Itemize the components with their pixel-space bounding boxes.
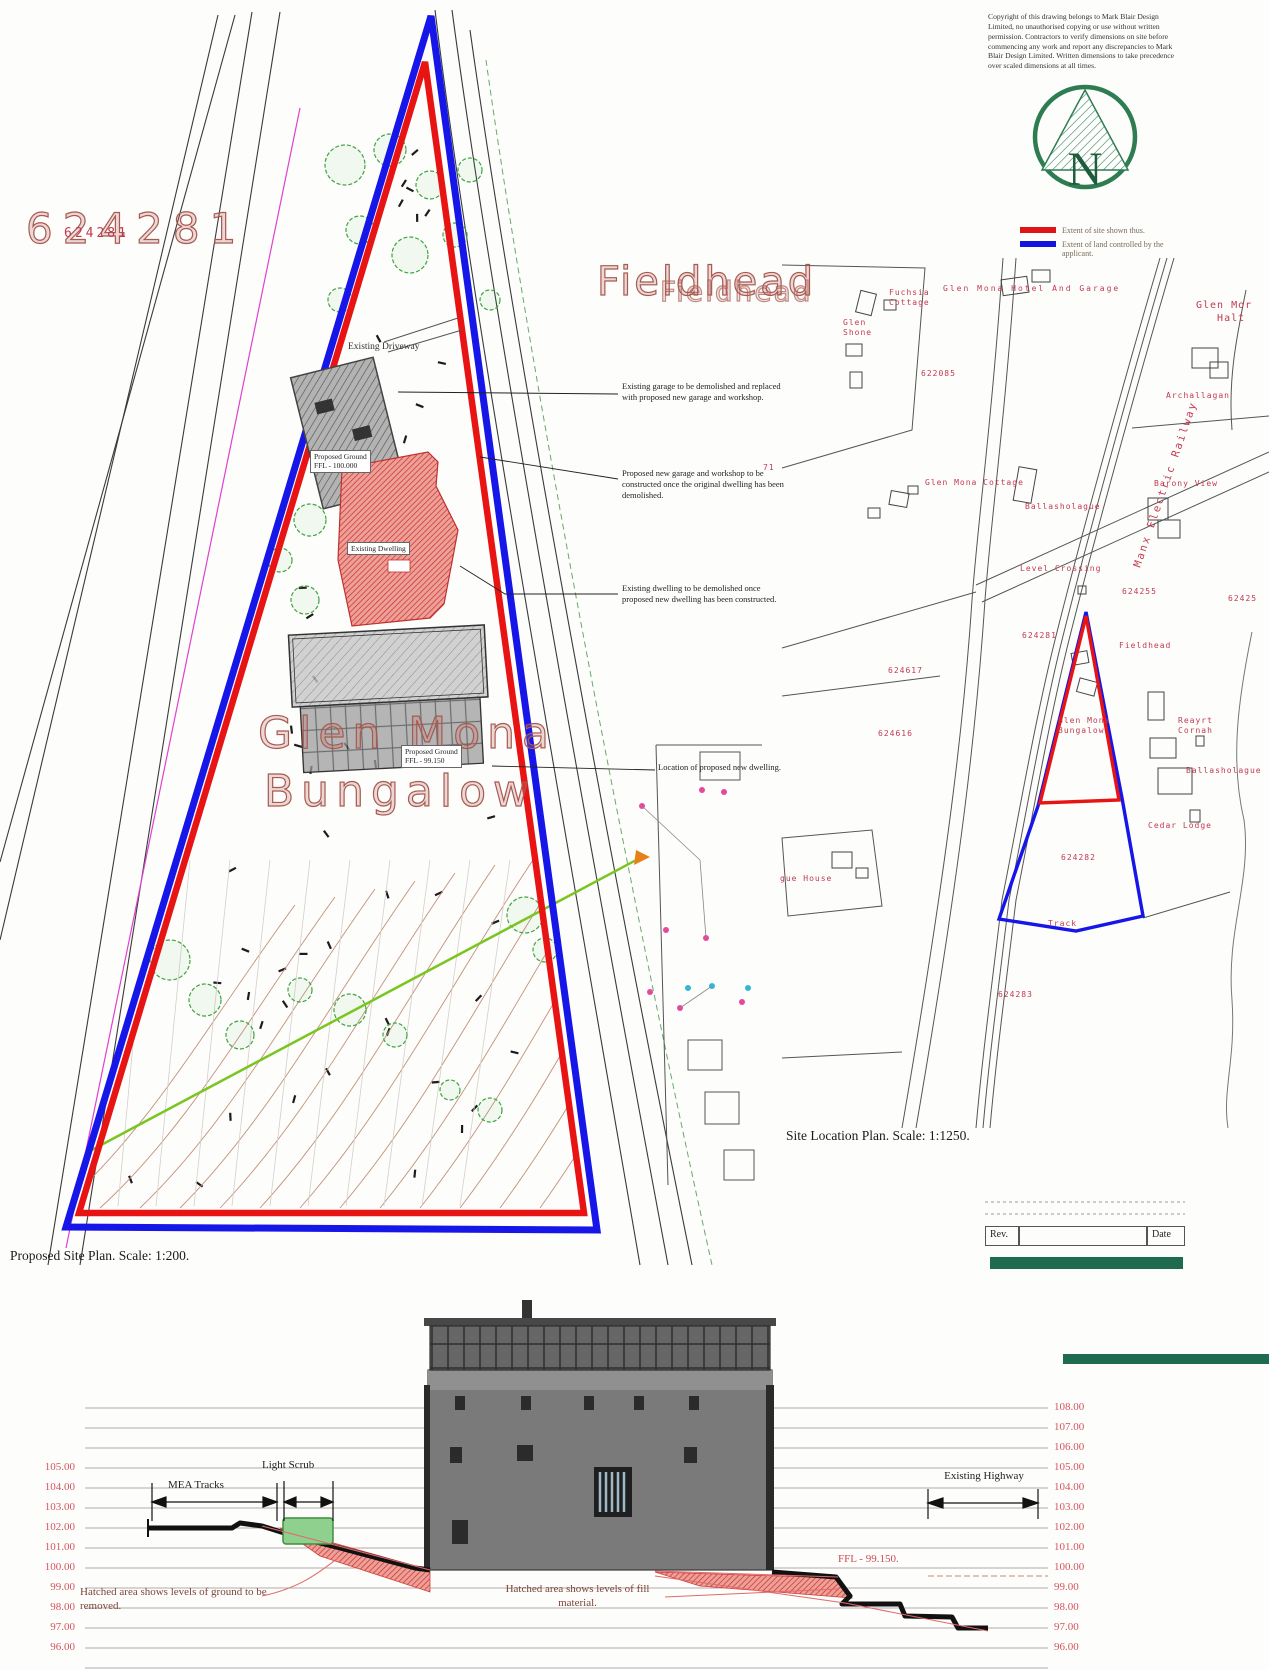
label-glen-mona-bungalow: Glen Mona Bungalow [1058, 716, 1110, 736]
label-glen-shone: Glen Shone [843, 318, 872, 338]
label-archallagan: Archallagan [1166, 391, 1230, 401]
legend-blue-swatch [1020, 241, 1056, 247]
fieldhead-big-echo: Fieldhead [660, 278, 813, 306]
parcel-624281: 624281 [1022, 631, 1057, 641]
existing-dwelling-label: Existing Dwelling [347, 542, 410, 555]
label-fuchsia-cottage: Fuchsia Cottage [889, 288, 930, 308]
label-gue-house: gue House [780, 874, 832, 884]
level-left-9: 96.00 [33, 1642, 75, 1653]
date-header: Date [1147, 1226, 1185, 1246]
removed-note: Hatched area shows levels of ground to b… [80, 1586, 275, 1614]
fill-note: Hatched area shows levels of fill materi… [485, 1583, 670, 1611]
label-level-crossing: Level Crossing [1020, 564, 1101, 574]
level-right-1: 107.00 [1054, 1422, 1084, 1433]
parcel-71: 71 [763, 463, 775, 473]
parcel-62425: 62425 [1228, 594, 1257, 604]
label-glen-mona-halt: Glen Mor Halt [1196, 300, 1252, 325]
titleblock-bar-1 [990, 1257, 1183, 1269]
utility-markers [639, 787, 751, 1011]
level-right-6: 102.00 [1054, 1522, 1084, 1533]
bungalow-big: Bungalow [264, 770, 536, 814]
level-right-4: 104.00 [1054, 1482, 1084, 1493]
legend-control-row: Extent of land controlled by the applica… [1020, 240, 1180, 259]
location-boundary-red [1040, 616, 1119, 803]
survey-arrow [634, 850, 650, 865]
label-track: Track [1048, 919, 1077, 929]
boundary-land-controlled [66, 16, 597, 1230]
north-arrow: N [1035, 87, 1135, 196]
big-parcel-number-overlay: 624281 [64, 226, 129, 242]
level-right-9: 99.00 [1054, 1582, 1079, 1593]
parcel-624617: 624617 [888, 666, 923, 676]
label-reayrt-cornah: Reayrt Cornah [1178, 716, 1213, 736]
level-left-4: 101.00 [33, 1542, 75, 1553]
site-plan-magenta-boundary [66, 108, 300, 1248]
revision-rows [985, 1196, 1185, 1226]
legend: Extent of site shown thus. Extent of lan… [1020, 226, 1180, 263]
level-right-0: 108.00 [1054, 1402, 1084, 1413]
level-left-0: 105.00 [33, 1462, 75, 1473]
level-left-3: 102.00 [33, 1522, 75, 1533]
legend-site-label: Extent of site shown thus. [1062, 226, 1180, 236]
section-building [424, 1300, 776, 1570]
label-glen-mona-hotel: Glen Mona Hotel And Garage [943, 284, 1120, 294]
parcel-624255: 624255 [1122, 587, 1157, 597]
parcel-622085: 622085 [921, 369, 956, 379]
level-right-7: 101.00 [1054, 1542, 1084, 1553]
parcel-624282: 624282 [1061, 853, 1096, 863]
legend-site-row: Extent of site shown thus. [1020, 226, 1180, 236]
legend-red-swatch [1020, 227, 1056, 233]
level-right-10: 98.00 [1054, 1602, 1079, 1613]
annotation-dwelling-demolish: Existing dwelling to be demolished once … [622, 583, 792, 605]
level-right-5: 103.00 [1054, 1502, 1084, 1513]
existing-driveway-label: Existing Driveway [348, 342, 420, 352]
level-right-3: 105.00 [1054, 1462, 1084, 1473]
drawing-sheet: Manx Electric Railway N [0, 0, 1269, 1670]
level-right-2: 106.00 [1054, 1442, 1084, 1453]
level-left-7: 98.00 [33, 1602, 75, 1613]
location-plan-caption: Site Location Plan. Scale: 1:1250. [786, 1128, 970, 1144]
site-plan-caption: Proposed Site Plan. Scale: 1:200. [10, 1248, 189, 1264]
light-scrub-block [283, 1518, 333, 1544]
label-glen-mona-cottage: Glen Mona Cottage [925, 478, 1024, 488]
level-left-1: 104.00 [33, 1482, 75, 1493]
annotation-new-dwelling-location: Location of proposed new dwelling. [658, 762, 878, 773]
north-letter: N [1068, 143, 1103, 196]
ffl-label: FFL - 99.150. [838, 1553, 899, 1567]
level-left-5: 100.00 [33, 1562, 75, 1573]
light-scrub-label: Light Scrub [262, 1459, 314, 1471]
label-ballasholague-right: Ballasholague [1186, 766, 1262, 776]
level-left-8: 97.00 [33, 1622, 75, 1633]
revision-table: Rev. Date [985, 1226, 1185, 1246]
rev-entry-cell [1019, 1226, 1147, 1246]
dwelling-inner-box [388, 560, 410, 572]
copyright-note: Copyright of this drawing belongs to Mar… [988, 12, 1186, 71]
label-fieldhead: Fieldhead [1119, 641, 1171, 651]
location-boundary-blue [999, 612, 1143, 931]
existing-highway-label: Existing Highway [922, 1470, 1046, 1482]
annotation-new-garage: Proposed new garage and workshop to be c… [622, 468, 792, 502]
garage-ffl-label: Proposed Ground FFL - 100.000 [310, 450, 371, 473]
east-plots [656, 745, 762, 1185]
level-right-12: 96.00 [1054, 1642, 1079, 1653]
parcel-624616: 624616 [878, 729, 913, 739]
existing-dwelling-outline [338, 452, 458, 626]
location-plan-buildings [832, 270, 1228, 878]
titleblock-bar-2 [1063, 1354, 1269, 1364]
mea-tracks-label: MEA Tracks [168, 1479, 224, 1491]
legend-control-label: Extent of land controlled by the applica… [1062, 240, 1180, 259]
level-right-11: 97.00 [1054, 1622, 1079, 1633]
label-cedar-lodge: Cedar Lodge [1148, 821, 1212, 831]
label-ballasholague-left: Ballasholague [1025, 502, 1101, 512]
label-barony-view: Barony View [1154, 479, 1218, 489]
level-left-2: 103.00 [33, 1502, 75, 1513]
annotation-garage-demolish: Existing garage to be demolished and rep… [622, 381, 792, 403]
big-parcel-number: 624281 [26, 208, 246, 250]
parcel-624283: 624283 [998, 990, 1033, 1000]
rev-header: Rev. [985, 1226, 1019, 1246]
level-left-6: 99.00 [33, 1582, 75, 1593]
new-dwelling-ffl-label: Proposed Ground FFL - 99.150 [401, 745, 462, 768]
level-right-8: 100.00 [1054, 1562, 1084, 1573]
